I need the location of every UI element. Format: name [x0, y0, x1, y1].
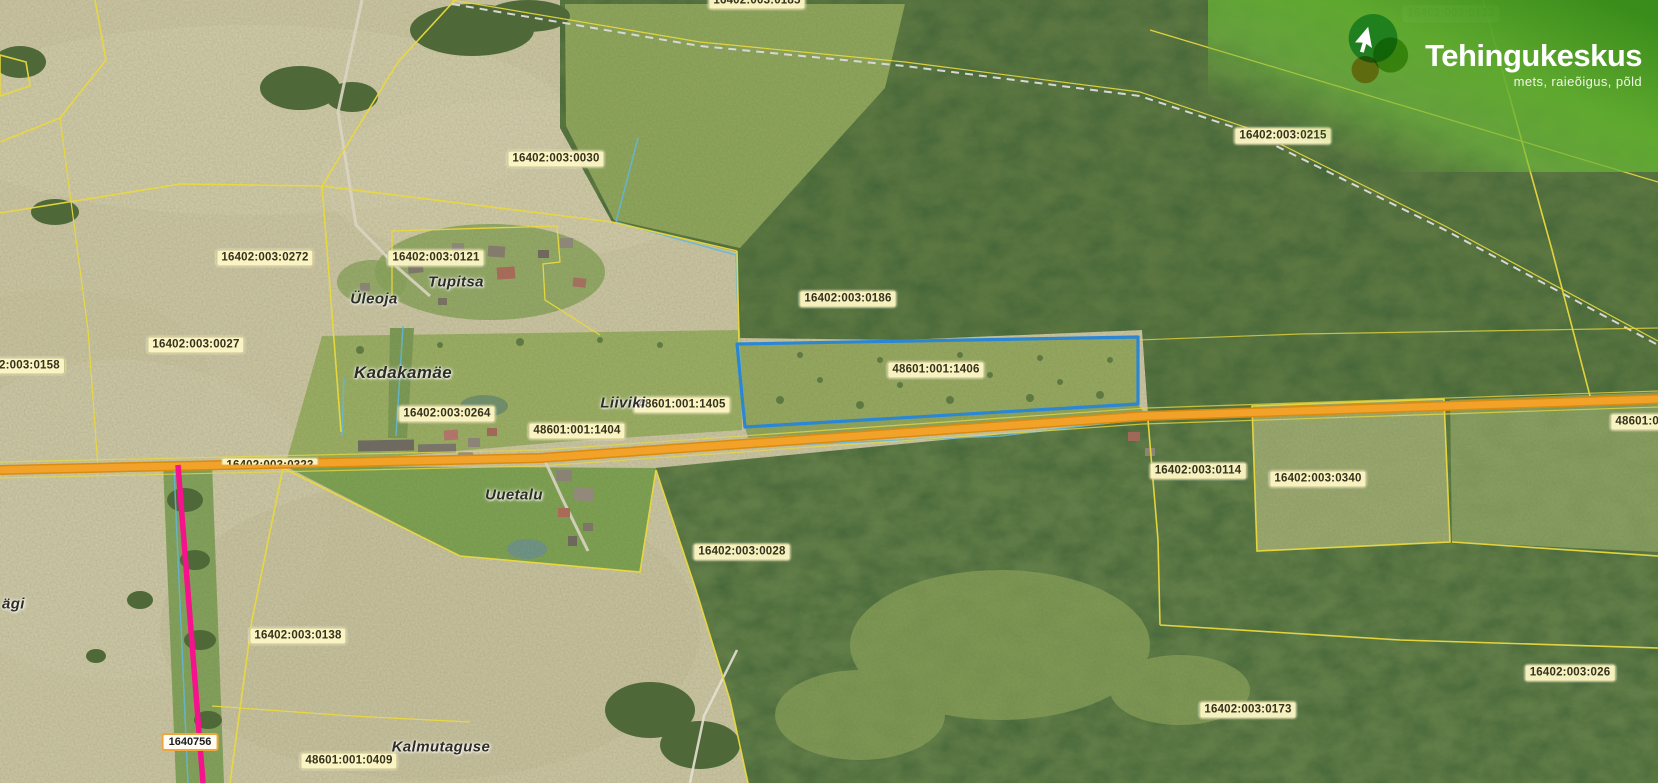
place-name-üleoja: Üleoja	[350, 291, 397, 308]
parcel-label-16402-003-0323[interactable]: 16402:003:0323	[221, 458, 318, 475]
parcel-label-16402-003-0185[interactable]: 16402:003:0185	[708, 0, 805, 10]
parcel-label-16402-003-0186[interactable]: 16402:003:0186	[799, 291, 896, 308]
parcel-label-16402-003-0121[interactable]: 16402:003:0121	[387, 250, 484, 267]
parcel-label-48601-001-0409[interactable]: 48601:001:0409	[300, 753, 397, 770]
parcel-label-16402-003-0272[interactable]: 16402:003:0272	[216, 250, 313, 267]
parcel-label-48601-001-1405[interactable]: 48601:001:1405	[633, 397, 730, 414]
parcel-label-16402-003-0340[interactable]: 16402:003:0340	[1269, 471, 1366, 488]
place-name-ägi: ägi	[2, 596, 25, 613]
parcel-label-16402-003-0030[interactable]: 16402:003:0030	[507, 151, 604, 168]
map-viewport[interactable]: 16402:003:018516402:003:013316402:003:02…	[0, 0, 1658, 783]
parcel-label-2-003-0158[interactable]: 2:003:0158	[0, 358, 65, 375]
parcel-label-48601-0[interactable]: 48601:0	[1610, 414, 1658, 431]
place-name-tupitsa: Tupitsa	[428, 274, 484, 291]
parcel-label-16402-003-0133[interactable]: 16402:003:0133	[1402, 6, 1499, 23]
parcel-label-16402-003-0215[interactable]: 16402:003:0215	[1234, 128, 1331, 145]
map-labels-layer: 16402:003:018516402:003:013316402:003:02…	[0, 0, 1658, 783]
parcel-label-48601-001-1406[interactable]: 48601:001:1406	[887, 362, 984, 379]
parcel-label-16402-003-0027[interactable]: 16402:003:0027	[147, 337, 244, 354]
place-name-kalmutaguse: Kalmutaguse	[392, 739, 491, 756]
parcel-label-16402-003-0114[interactable]: 16402:003:0114	[1150, 463, 1247, 480]
parcel-label-48601-001-1404[interactable]: 48601:001:1404	[528, 423, 625, 440]
place-name-kadakamäe: Kadakamäe	[354, 363, 452, 383]
parcel-label-16402-003-0028[interactable]: 16402:003:0028	[693, 544, 790, 561]
place-name-uuetalu: Uuetalu	[485, 487, 543, 504]
road-number-badge: 1640756	[162, 733, 219, 751]
parcel-label-16402-003-0264[interactable]: 16402:003:0264	[398, 406, 495, 423]
parcel-label-16402-003-0173[interactable]: 16402:003:0173	[1199, 702, 1296, 719]
place-name-liiviki: Liiviki	[600, 395, 645, 412]
parcel-label-16402-003-026[interactable]: 16402:003:026	[1525, 665, 1616, 682]
parcel-label-16402-003-0138[interactable]: 16402:003:0138	[249, 628, 346, 645]
